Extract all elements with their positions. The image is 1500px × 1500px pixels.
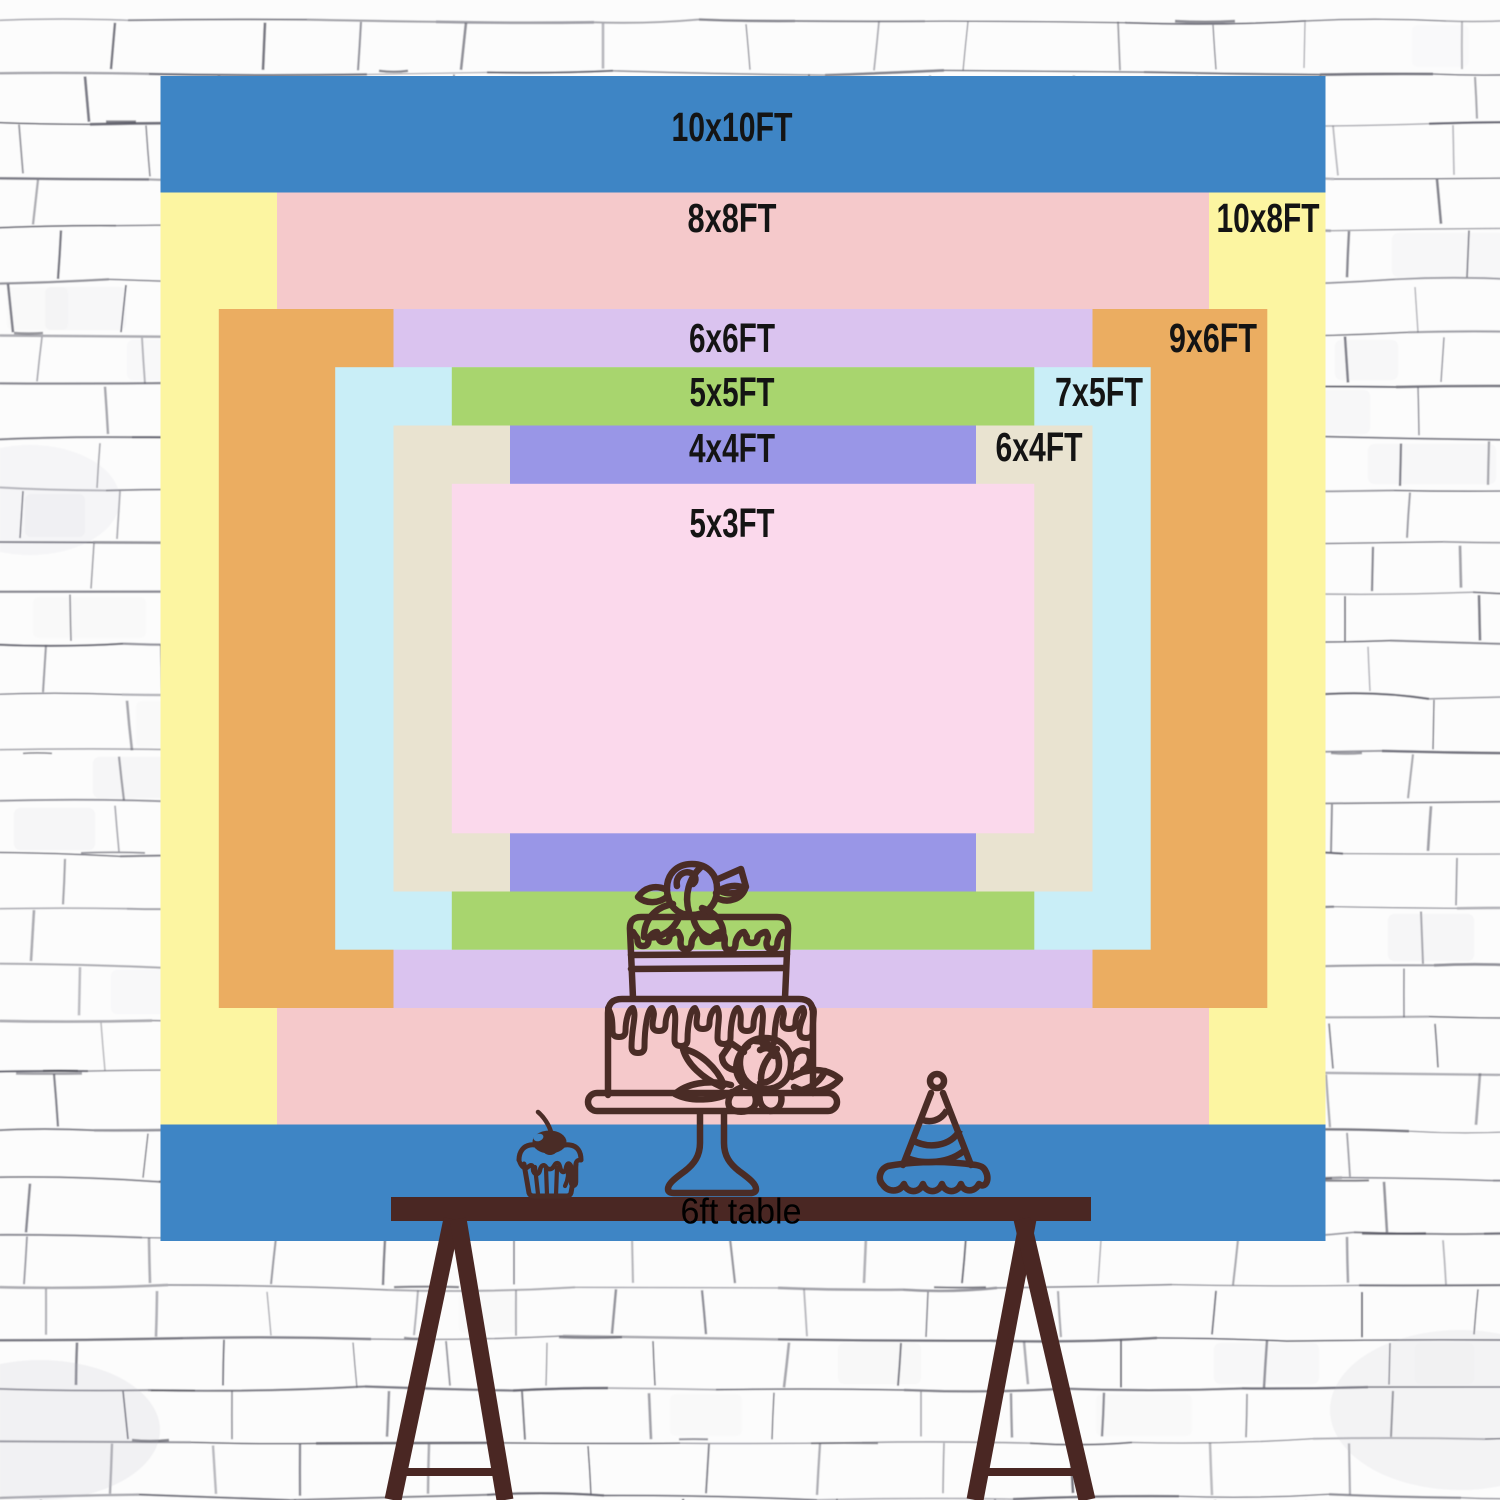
svg-text:6x6FT: 6x6FT bbox=[689, 315, 775, 361]
svg-text:9x6FT: 9x6FT bbox=[1169, 315, 1257, 361]
svg-text:4x4FT: 4x4FT bbox=[689, 425, 775, 471]
svg-text:10x8FT: 10x8FT bbox=[1217, 195, 1320, 241]
svg-text:6ft table: 6ft table bbox=[681, 1191, 802, 1232]
svg-text:7x5FT: 7x5FT bbox=[1055, 369, 1143, 415]
svg-text:8x8FT: 8x8FT bbox=[688, 195, 777, 241]
svg-text:5x3FT: 5x3FT bbox=[690, 500, 775, 546]
svg-text:6x4FT: 6x4FT bbox=[996, 424, 1083, 470]
svg-text:5x5FT: 5x5FT bbox=[690, 369, 775, 415]
svg-text:10x10FT: 10x10FT bbox=[672, 104, 793, 150]
